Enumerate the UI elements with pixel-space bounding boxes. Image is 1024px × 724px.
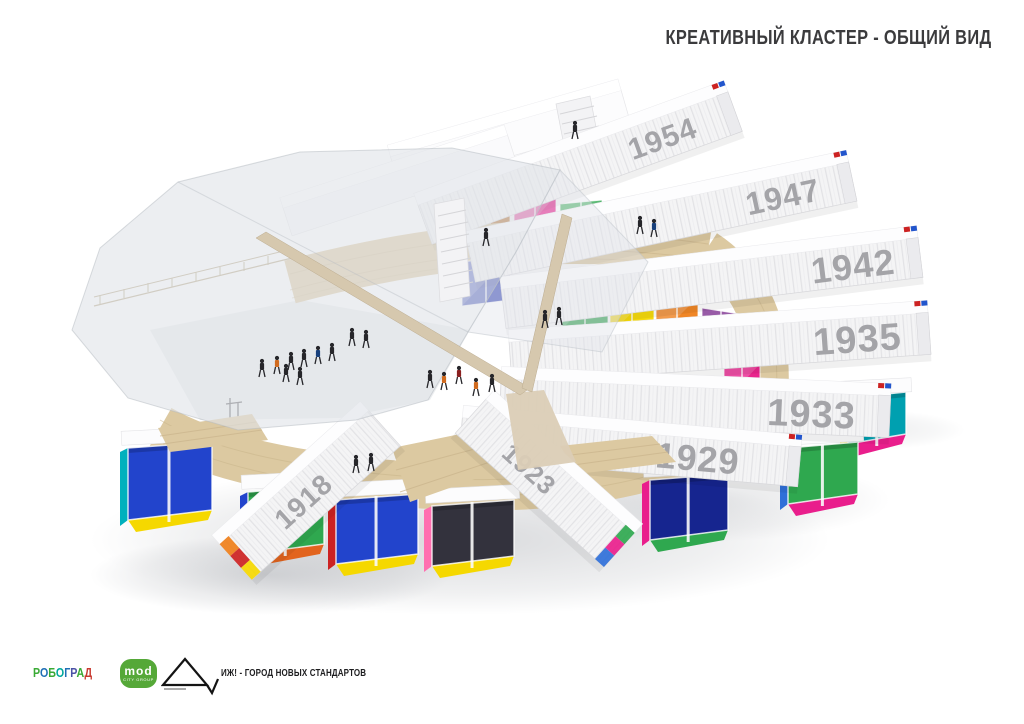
mod-logo-subtext: city group	[123, 678, 154, 682]
person-figure	[473, 378, 479, 396]
partner-text: ИЖ! - ГОРОД НОВЫХ СТАНДАРТОВ	[221, 668, 366, 679]
logo-microtext-bar	[164, 688, 186, 690]
robograd-letter: О	[56, 665, 64, 680]
robograd-letter: О	[40, 665, 48, 680]
robograd-letter: А	[76, 665, 84, 680]
robograd-letter: Б	[48, 665, 56, 680]
mod-logo: mod city group	[120, 659, 157, 688]
robograd-letter: Д	[85, 665, 93, 680]
mod-logo-text: mod	[124, 665, 152, 677]
presentation-slide: КРЕАТИВНЫЙ КЛАСТЕР - ОБЩИЙ ВИД	[0, 0, 1024, 724]
robograd-logo: РОБОГРАД	[33, 665, 92, 680]
year-label: 1935	[812, 316, 903, 364]
render-canvas: 195419471942193519331929 19231918	[0, 0, 1024, 724]
robograd-letter: Р	[33, 665, 40, 680]
container-interior	[424, 484, 520, 578]
person-figure	[456, 366, 462, 384]
izh-logo-icon	[161, 651, 219, 697]
canopy-sail	[72, 148, 560, 430]
year-label: 1933	[766, 392, 856, 438]
